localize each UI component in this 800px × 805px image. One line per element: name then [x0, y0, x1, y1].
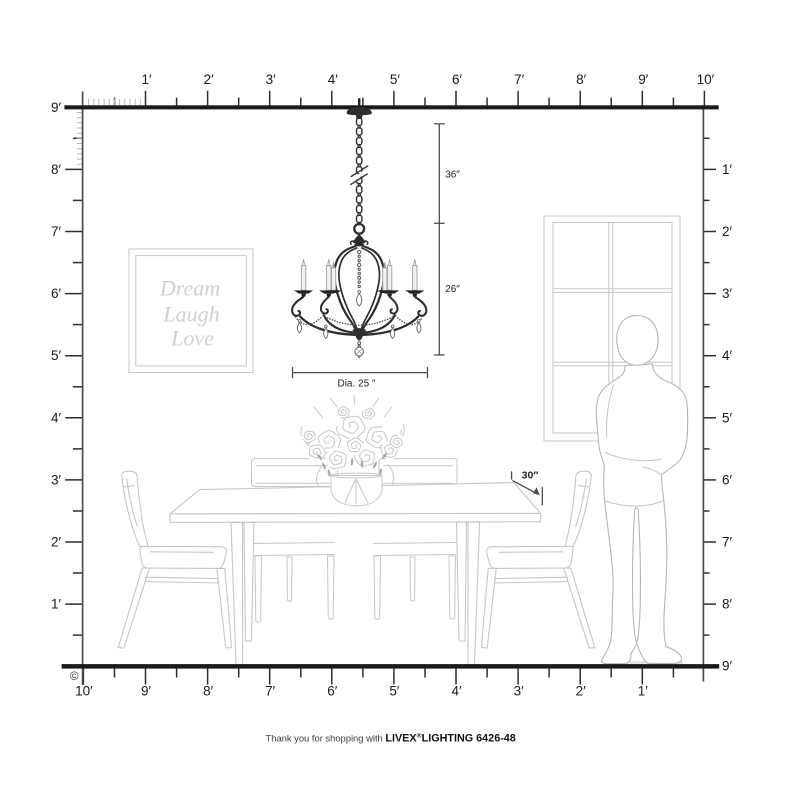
svg-text:6′: 6′ — [722, 472, 733, 487]
svg-text:2′: 2′ — [204, 72, 215, 87]
svg-text:30″: 30″ — [522, 470, 539, 482]
svg-text:2′: 2′ — [51, 535, 62, 550]
svg-text:1′: 1′ — [51, 597, 62, 612]
svg-text:6′: 6′ — [51, 286, 62, 301]
svg-text:5′: 5′ — [722, 410, 733, 425]
svg-text:1′: 1′ — [722, 162, 733, 177]
svg-text:3′: 3′ — [266, 72, 277, 87]
svg-text:9′: 9′ — [141, 684, 152, 699]
svg-text:8′: 8′ — [51, 162, 62, 177]
svg-text:Laugh: Laugh — [162, 302, 219, 327]
svg-text:6′: 6′ — [452, 72, 463, 87]
svg-text:1′: 1′ — [141, 72, 152, 87]
svg-text:3′: 3′ — [722, 286, 733, 301]
svg-text:8′: 8′ — [203, 684, 214, 699]
svg-text:5′: 5′ — [389, 684, 400, 699]
svg-text:4′: 4′ — [451, 684, 462, 699]
svg-text:5′: 5′ — [51, 348, 62, 363]
svg-text:36″: 36″ — [445, 169, 460, 180]
svg-text:9′: 9′ — [638, 72, 649, 87]
svg-text:4′: 4′ — [51, 410, 62, 425]
svg-text:7′: 7′ — [51, 224, 62, 239]
svg-text:Thank you for shopping with LI: Thank you for shopping with LIVEX®LIGHTI… — [266, 732, 516, 745]
svg-text:26″: 26″ — [445, 284, 460, 295]
svg-text:9′: 9′ — [51, 100, 62, 115]
svg-text:1′: 1′ — [638, 684, 649, 699]
svg-text:Dream: Dream — [159, 276, 220, 301]
svg-text:10′: 10′ — [75, 684, 93, 699]
svg-text:Dia. 25 ″: Dia. 25 ″ — [337, 378, 375, 389]
svg-text:©: © — [70, 671, 79, 683]
svg-text:7′: 7′ — [265, 684, 276, 699]
svg-text:3′: 3′ — [51, 472, 62, 487]
svg-text:4′: 4′ — [328, 72, 339, 87]
svg-text:8′: 8′ — [722, 597, 733, 612]
svg-text:Love: Love — [170, 326, 214, 351]
svg-text:4′: 4′ — [722, 348, 733, 363]
svg-text:6′: 6′ — [327, 684, 338, 699]
svg-text:5′: 5′ — [390, 72, 401, 87]
svg-text:3′: 3′ — [514, 684, 525, 699]
svg-text:10′: 10′ — [697, 72, 715, 87]
svg-text:8′: 8′ — [576, 72, 587, 87]
svg-text:2′: 2′ — [722, 224, 733, 239]
svg-text:7′: 7′ — [722, 535, 733, 550]
svg-text:2′: 2′ — [576, 684, 587, 699]
svg-text:9′: 9′ — [722, 659, 733, 674]
svg-text:7′: 7′ — [514, 72, 525, 87]
